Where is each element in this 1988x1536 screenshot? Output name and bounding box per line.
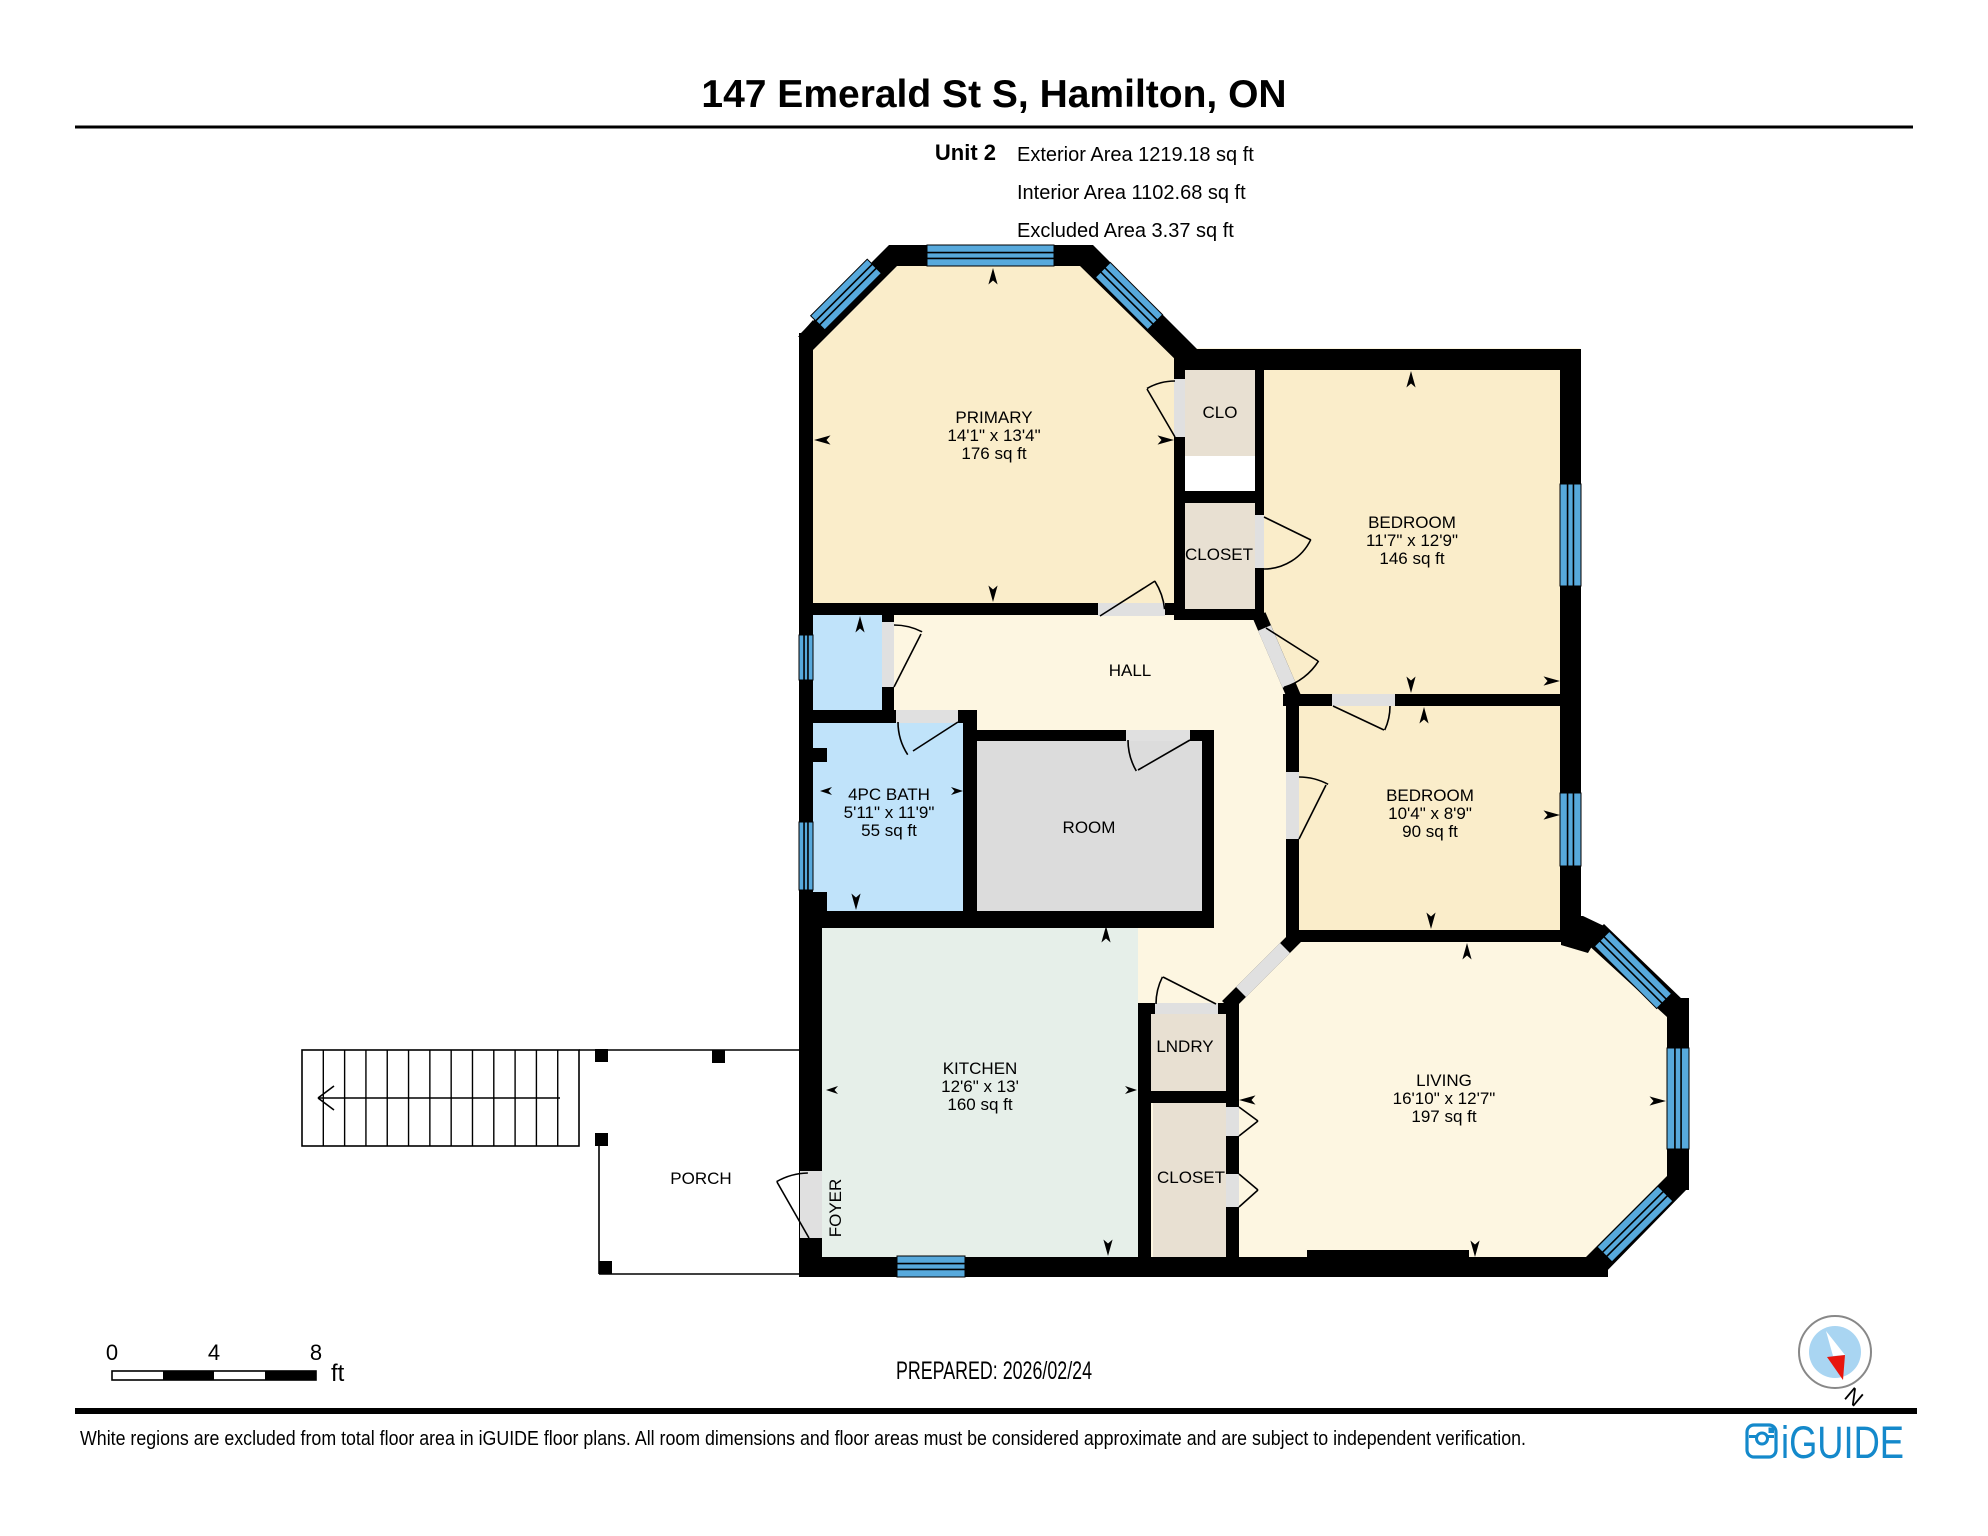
svg-text:Unit 2: Unit 2 [935, 140, 996, 165]
svg-text:ft: ft [331, 1360, 345, 1387]
svg-text:BEDROOM: BEDROOM [1386, 786, 1474, 805]
svg-text:16'10" x 12'7": 16'10" x 12'7" [1393, 1089, 1496, 1108]
svg-text:LIVING: LIVING [1416, 1071, 1472, 1090]
svg-text:iGUIDE: iGUIDE [1781, 1417, 1904, 1468]
svg-text:Exterior Area 1219.18 sq ft: Exterior Area 1219.18 sq ft [1017, 144, 1254, 166]
svg-text:LNDRY: LNDRY [1156, 1037, 1213, 1056]
svg-text:Excluded Area 3.37 sq ft: Excluded Area 3.37 sq ft [1017, 220, 1234, 242]
svg-text:KITCHEN: KITCHEN [943, 1059, 1018, 1078]
svg-text:176 sq ft: 176 sq ft [961, 444, 1026, 463]
svg-text:PREPARED: 2026/02/24: PREPARED: 2026/02/24 [896, 1357, 1092, 1385]
svg-text:CLO: CLO [1203, 403, 1238, 422]
svg-text:PORCH: PORCH [670, 1169, 731, 1188]
svg-text:0: 0 [106, 1340, 118, 1365]
svg-text:BEDROOM: BEDROOM [1368, 513, 1456, 532]
svg-text:160 sq ft: 160 sq ft [947, 1095, 1012, 1114]
svg-text:PRIMARY: PRIMARY [955, 408, 1032, 427]
svg-text:White regions are excluded fro: White regions are excluded from total fl… [80, 1428, 1526, 1450]
svg-text:55 sq ft: 55 sq ft [861, 821, 917, 840]
svg-text:8: 8 [310, 1340, 322, 1365]
svg-text:14'1" x 13'4": 14'1" x 13'4" [947, 426, 1040, 445]
svg-text:ROOM: ROOM [1063, 818, 1116, 837]
svg-text:4PC BATH: 4PC BATH [848, 785, 930, 804]
svg-text:FOYER: FOYER [826, 1179, 845, 1238]
svg-text:90 sq ft: 90 sq ft [1402, 822, 1458, 841]
svg-text:10'4" x 8'9": 10'4" x 8'9" [1388, 804, 1472, 823]
svg-text:4: 4 [208, 1340, 220, 1365]
svg-text:5'11" x 11'9": 5'11" x 11'9" [844, 803, 935, 822]
svg-text:147 Emerald St S, Hamilton, ON: 147 Emerald St S, Hamilton, ON [701, 73, 1286, 116]
svg-text:CLOSET: CLOSET [1185, 545, 1253, 564]
svg-text:197 sq ft: 197 sq ft [1411, 1107, 1476, 1126]
svg-text:11'7" x 12'9": 11'7" x 12'9" [1366, 531, 1458, 550]
svg-text:Interior Area 1102.68 sq ft: Interior Area 1102.68 sq ft [1017, 182, 1246, 204]
svg-text:12'6" x 13': 12'6" x 13' [941, 1077, 1019, 1096]
svg-text:HALL: HALL [1109, 661, 1152, 680]
svg-text:146 sq ft: 146 sq ft [1379, 549, 1444, 568]
svg-text:CLOSET: CLOSET [1157, 1168, 1225, 1187]
